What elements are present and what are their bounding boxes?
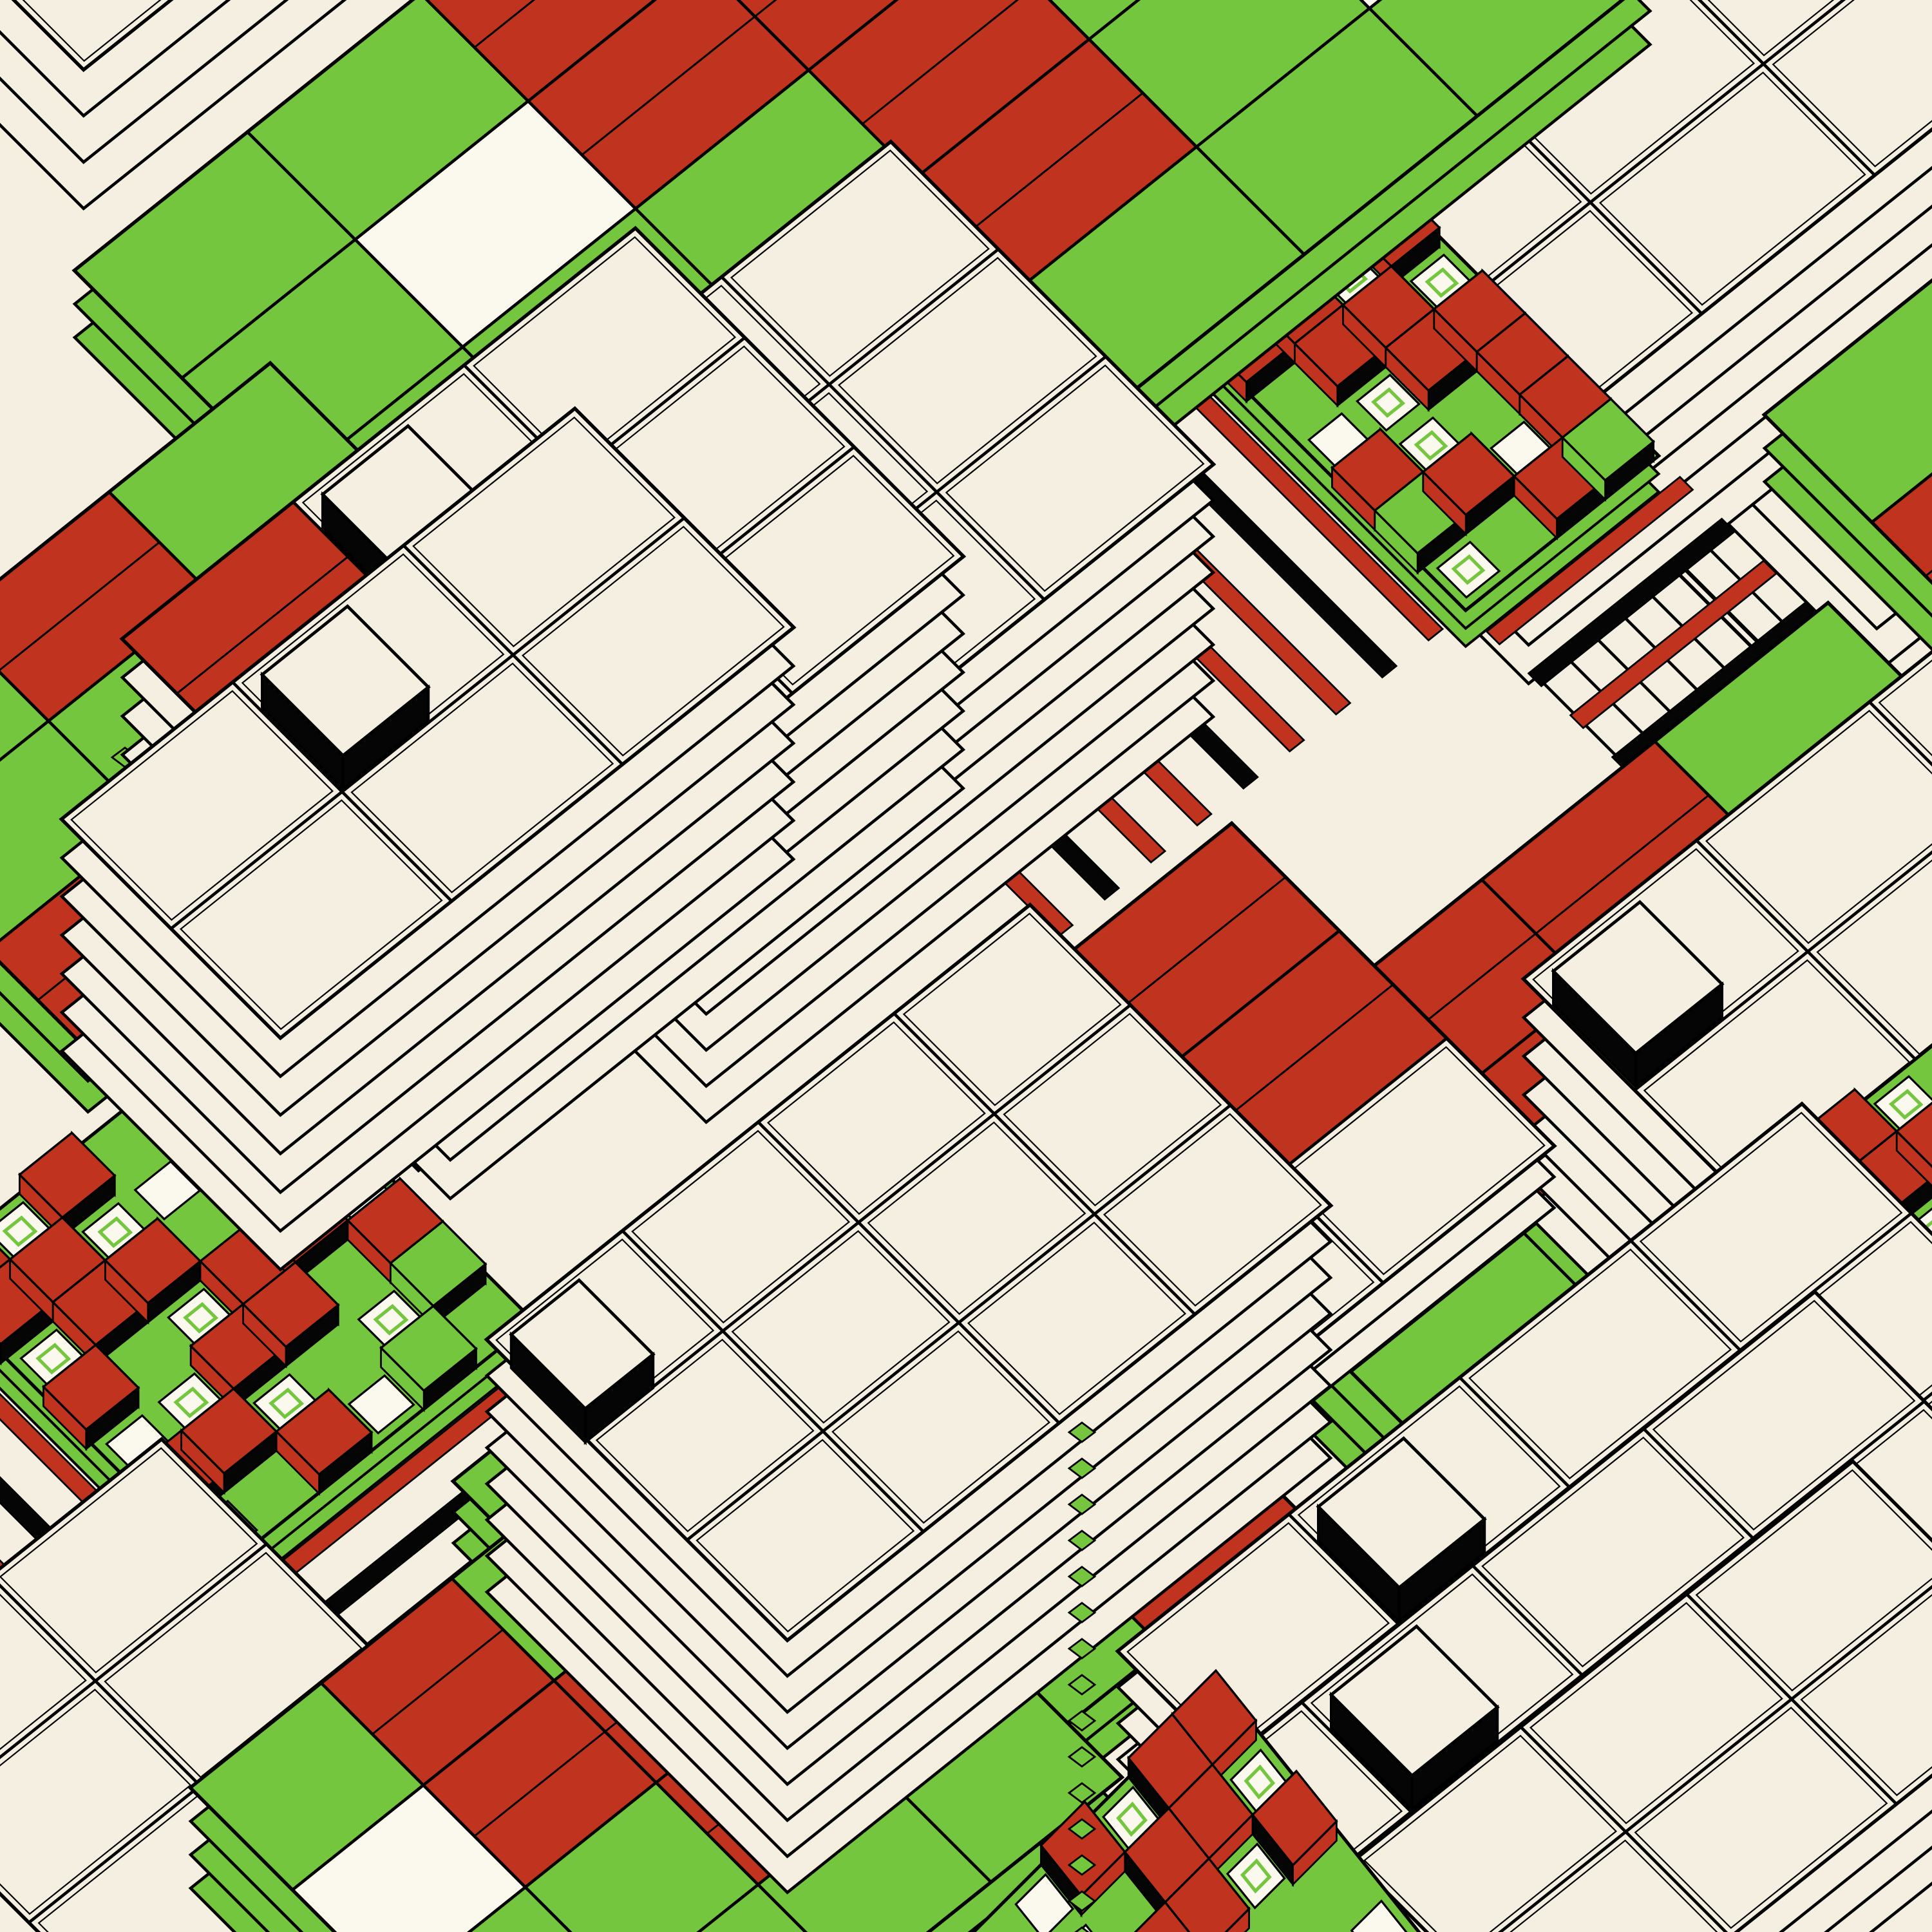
generative-artwork-canvas	[0, 0, 1932, 1932]
artwork-root: Abstract generative artwork: isometric s…	[0, 0, 1932, 1932]
